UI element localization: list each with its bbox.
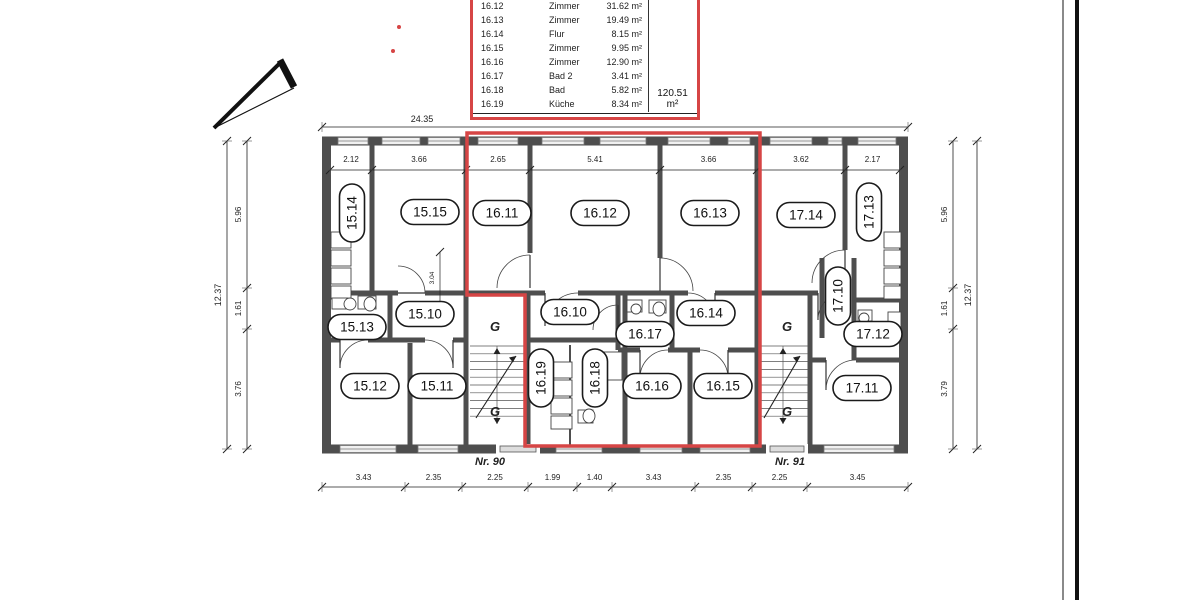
table-cell: 19.49 m²: [585, 15, 642, 25]
room-number: 16.17: [628, 327, 662, 342]
table-cell: Zimmer: [549, 57, 580, 67]
entrance-door: [770, 446, 804, 452]
room-number: 17.12: [856, 327, 890, 342]
door-swing: [660, 258, 693, 291]
door-swing: [340, 340, 368, 368]
table-row: 16.15Zimmer9.95 m²: [473, 42, 697, 56]
table-row: 16.14Flur8.15 m²: [473, 28, 697, 42]
table-cell: 31.62 m²: [585, 1, 642, 11]
dim-label: 3.66: [411, 155, 427, 164]
room-label: 17.10: [826, 267, 851, 325]
dim-label: 2.35: [716, 473, 732, 482]
room-number: 17.11: [846, 381, 879, 396]
dim-label: 3.45: [850, 473, 866, 482]
table-row: 16.13Zimmer19.49 m²: [473, 14, 697, 28]
room-label: 15.14: [340, 184, 365, 242]
dim-label: 5.96: [940, 206, 949, 222]
room-label: 16.11: [473, 201, 531, 226]
stair-hall-label: G: [490, 404, 500, 419]
fixture: [551, 398, 572, 414]
room-number: 16.14: [689, 306, 723, 321]
room-label: 15.10: [396, 302, 454, 327]
north-arrow-icon: [214, 61, 282, 128]
table-cell: Bad 2: [549, 71, 573, 81]
table-cell: 16.18: [481, 85, 504, 95]
dim-label: 12.37: [213, 284, 223, 307]
room-number: 15.12: [353, 379, 387, 394]
dim-label: 3.43: [646, 473, 662, 482]
stair-up-mark: [494, 348, 501, 354]
table-cell: 16.19: [481, 99, 504, 109]
table-cell: Zimmer: [549, 15, 580, 25]
table-column-divider: [648, 0, 649, 112]
fixture: [631, 304, 641, 314]
room-area-table: 16.12Zimmer31.62 m²16.13Zimmer19.49 m²16…: [470, 0, 700, 120]
room-number: 16.11: [486, 206, 519, 221]
room-number: 16.18: [588, 361, 603, 395]
north-arrow-icon: [214, 88, 294, 128]
stair-hall-label: G: [782, 404, 792, 419]
fixture: [884, 286, 901, 299]
table-row: 16.12Zimmer31.62 m²: [473, 0, 697, 14]
dim-label: 1.40: [587, 473, 603, 482]
fixture: [331, 250, 351, 266]
table-cell: 8.15 m²: [585, 29, 642, 39]
room-label: 16.15: [694, 374, 752, 399]
room-number: 16.12: [583, 206, 617, 221]
room-number: 16.19: [534, 361, 549, 395]
table-cell: Küche: [549, 99, 575, 109]
table-cell: 16.12: [481, 1, 504, 11]
dim-label: 2.12: [343, 155, 359, 164]
room-label: 16.12: [571, 201, 629, 226]
room-label: 16.10: [541, 300, 599, 325]
dim-label: 5.41: [587, 155, 603, 164]
room-label: 16.16: [623, 374, 681, 399]
fixture: [884, 268, 901, 284]
fixture: [331, 268, 351, 284]
room-label: 15.12: [341, 374, 399, 399]
total-area-value: 120.51 m²: [650, 88, 695, 110]
table-cell: 3.41 m²: [585, 71, 642, 81]
fixture: [653, 302, 665, 316]
room-number: 15.15: [413, 205, 447, 220]
room-number: 15.10: [408, 307, 442, 322]
room-label: 15.11: [408, 374, 466, 399]
table-cell: 12.90 m²: [585, 57, 642, 67]
table-cell: Zimmer: [549, 1, 580, 11]
dim-label: 3.76: [234, 381, 243, 397]
fixture: [364, 297, 376, 311]
dim-label: 2.25: [772, 473, 788, 482]
floor-plan-page: { "colors":{"red":"#d64545","wall":"#4e4…: [0, 0, 1200, 600]
table-cell: 16.14: [481, 29, 504, 39]
dim-label: 1.99: [545, 473, 561, 482]
room-number: 16.13: [693, 206, 727, 221]
stair-hall-label: G: [782, 319, 792, 334]
fixture: [551, 416, 572, 429]
table-cell: Zimmer: [549, 43, 580, 53]
fixture: [884, 232, 901, 248]
dim-label: 3.62: [793, 155, 809, 164]
table-cell: Bad: [549, 85, 565, 95]
room-number: 17.10: [831, 279, 846, 313]
dim-label: 3.43: [356, 473, 372, 482]
room-label: 17.11: [833, 376, 891, 401]
table-cell: Flur: [549, 29, 565, 39]
room-label: 15.13: [328, 315, 386, 340]
entrance-number: Nr. 90: [475, 456, 506, 468]
fixture: [331, 286, 351, 299]
table-cell: 5.82 m²: [585, 85, 642, 95]
stair-up-mark: [780, 348, 787, 354]
room-number: 16.10: [553, 305, 587, 320]
table-cell: 16.15: [481, 43, 504, 53]
room-label: 16.19: [529, 349, 554, 407]
room-number: 16.16: [635, 379, 669, 394]
room-label: 16.13: [681, 201, 739, 226]
entrance-number: Nr. 91: [775, 456, 805, 468]
room-number: 15.14: [345, 196, 360, 230]
table-row: 16.16Zimmer12.90 m²: [473, 56, 697, 70]
dim-label: 3.04: [429, 271, 436, 284]
dim-label: 2.35: [426, 473, 442, 482]
room-number: 17.13: [862, 195, 877, 229]
room-number: 16.15: [706, 379, 740, 394]
room-label: 16.14: [677, 301, 735, 326]
red-dot: [397, 25, 401, 29]
table-cell: 16.16: [481, 57, 504, 67]
room-number: 15.11: [421, 379, 454, 394]
table-cell: 16.13: [481, 15, 504, 25]
north-arrow-icon: [280, 60, 294, 87]
dim-label: 24.35: [411, 114, 434, 124]
door-swing: [425, 340, 453, 368]
table-cell: 16.17: [481, 71, 504, 81]
dim-label: 1.61: [234, 300, 243, 316]
fixture: [884, 250, 901, 266]
room-label: 16.17: [616, 322, 674, 347]
dim-label: 2.17: [865, 155, 881, 164]
stair-hall-label: G: [490, 319, 500, 334]
dim-label: 2.25: [487, 473, 503, 482]
table-row: 16.17Bad 23.41 m²: [473, 70, 697, 84]
room-number: 17.14: [789, 208, 823, 223]
dim-label: 12.37: [963, 284, 973, 307]
dim-label: 1.61: [940, 300, 949, 316]
fixture: [344, 298, 356, 310]
room-number: 15.13: [340, 320, 374, 335]
dim-label: 5.96: [234, 206, 243, 222]
room-label: 17.12: [844, 322, 902, 347]
table-cell: 9.95 m²: [585, 43, 642, 53]
table-cell: 8.34 m²: [585, 99, 642, 109]
room-label: 15.15: [401, 200, 459, 225]
red-dot: [391, 49, 395, 53]
dim-label: 2.65: [490, 155, 506, 164]
door-swing: [398, 266, 425, 293]
dim-label: 3.66: [701, 155, 717, 164]
room-label: 17.13: [857, 183, 882, 241]
door-swing: [497, 255, 530, 288]
dim-label: 3.79: [940, 381, 949, 397]
room-label: 17.14: [777, 203, 835, 228]
fixture: [583, 409, 595, 423]
room-label: 16.18: [583, 349, 608, 407]
